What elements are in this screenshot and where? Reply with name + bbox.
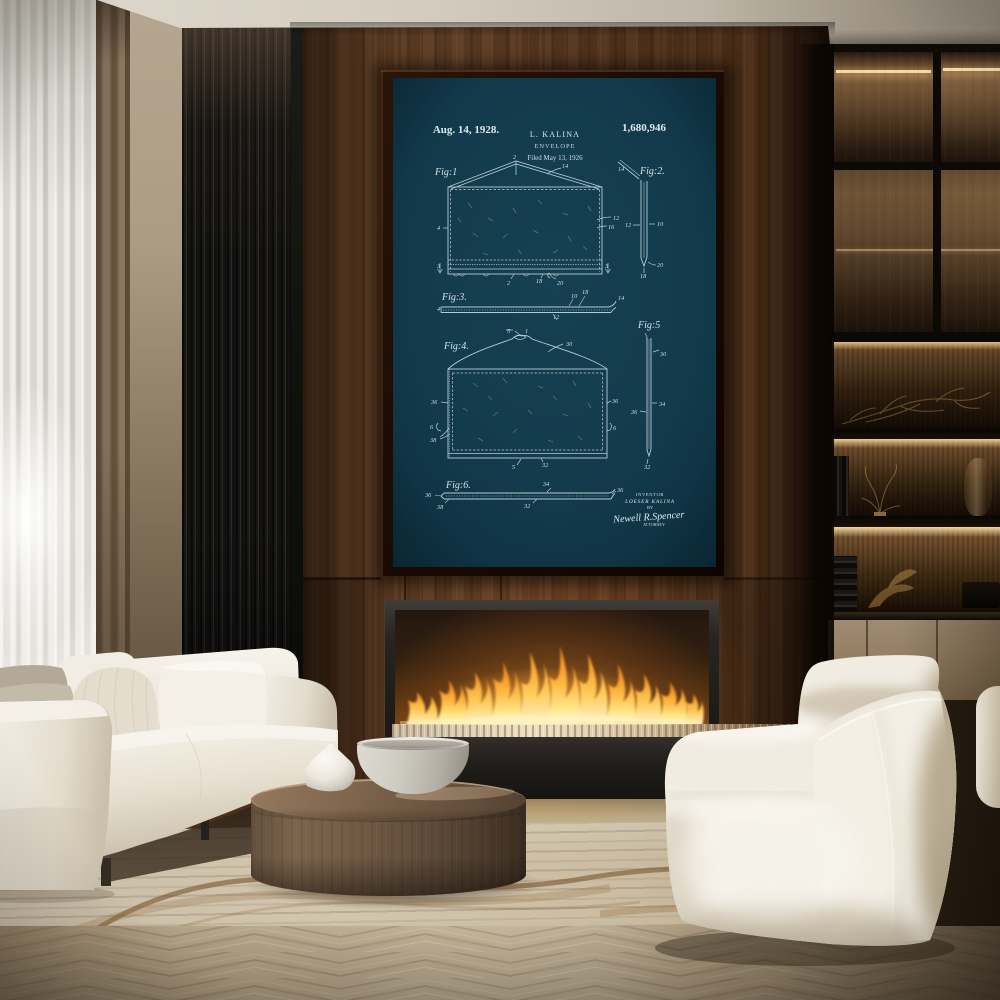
svg-text:ATTORNEY: ATTORNEY xyxy=(643,522,665,527)
svg-text:12: 12 xyxy=(625,222,631,229)
svg-text:5: 5 xyxy=(512,464,515,471)
svg-text:16: 16 xyxy=(608,224,615,231)
svg-text:14: 14 xyxy=(618,166,624,173)
svg-text:36: 36 xyxy=(430,399,438,406)
svg-text:18: 18 xyxy=(536,278,543,285)
svg-text:14: 14 xyxy=(618,295,624,302)
svg-text:Aug. 14, 1928.: Aug. 14, 1928. xyxy=(433,124,500,136)
svg-text:12: 12 xyxy=(613,215,619,222)
svg-text:INVENTOR: INVENTOR xyxy=(636,492,665,497)
svg-text:3: 3 xyxy=(604,263,608,270)
svg-text:Fig:5: Fig:5 xyxy=(637,320,660,331)
svg-text:Fig:2.: Fig:2. xyxy=(639,166,665,177)
svg-text:18: 18 xyxy=(640,273,647,280)
svg-text:34: 34 xyxy=(542,481,549,488)
svg-text:32: 32 xyxy=(541,462,548,469)
svg-text:10: 10 xyxy=(657,221,664,228)
svg-text:20: 20 xyxy=(657,262,664,269)
svg-text:4: 4 xyxy=(437,225,440,232)
svg-text:BY: BY xyxy=(647,505,654,510)
svg-text:36: 36 xyxy=(616,487,624,494)
svg-text:4: 4 xyxy=(437,306,440,313)
svg-text:14: 14 xyxy=(562,163,568,170)
svg-text:36: 36 xyxy=(630,409,638,416)
svg-text:ENVELOPE: ENVELOPE xyxy=(534,143,575,150)
svg-text:20: 20 xyxy=(557,280,564,287)
svg-text:2: 2 xyxy=(513,154,516,161)
svg-text:Fig:6.: Fig:6. xyxy=(445,480,471,491)
svg-text:Fig:3.: Fig:3. xyxy=(441,292,467,303)
svg-text:36: 36 xyxy=(424,492,432,499)
svg-text:Fig:1: Fig:1 xyxy=(434,167,457,178)
svg-text:L. KALINA: L. KALINA xyxy=(530,130,580,139)
svg-text:32: 32 xyxy=(523,503,530,510)
svg-text:1: 1 xyxy=(525,328,528,335)
svg-text:2: 2 xyxy=(507,280,510,287)
svg-text:38: 38 xyxy=(436,504,444,511)
svg-text:32: 32 xyxy=(643,464,650,471)
svg-text:30: 30 xyxy=(565,341,573,348)
svg-text:5: 5 xyxy=(507,328,510,335)
svg-text:3: 3 xyxy=(436,263,440,270)
svg-text:30: 30 xyxy=(659,351,667,358)
svg-text:34: 34 xyxy=(658,401,665,408)
svg-text:1,680,946: 1,680,946 xyxy=(622,122,667,134)
svg-text:10: 10 xyxy=(571,293,578,300)
svg-text:Fig:4.: Fig:4. xyxy=(443,341,469,352)
svg-text:38: 38 xyxy=(429,437,437,444)
svg-text:36: 36 xyxy=(611,398,619,405)
svg-text:18: 18 xyxy=(582,289,589,296)
svg-text:Filed May 13, 1926: Filed May 13, 1926 xyxy=(527,154,583,162)
svg-text:12: 12 xyxy=(553,314,559,321)
